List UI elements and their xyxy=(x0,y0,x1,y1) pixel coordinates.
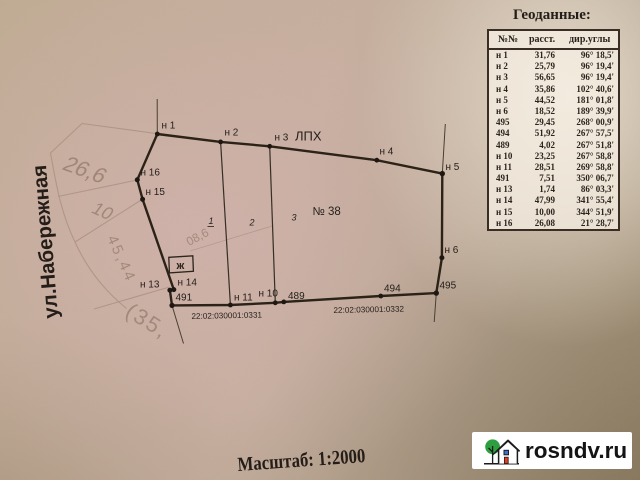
svg-text:н 4: н 4 xyxy=(380,147,394,158)
svg-text:н 5: н 5 xyxy=(446,162,460,173)
svg-text:26,6: 26,6 xyxy=(58,152,112,188)
svg-text:10: 10 xyxy=(88,199,118,223)
svg-text:н 2: н 2 xyxy=(225,128,239,139)
svg-text:495: 495 xyxy=(440,281,457,292)
svg-text:№ 38: № 38 xyxy=(313,206,341,218)
svg-text:3: 3 xyxy=(292,213,297,223)
svg-text:491: 491 xyxy=(176,293,193,304)
svg-text:н 11: н 11 xyxy=(234,293,253,304)
svg-text:н 3: н 3 xyxy=(275,133,289,144)
svg-text:45,44: 45,44 xyxy=(103,233,139,286)
svg-text:494: 494 xyxy=(384,284,401,295)
svg-text:н 16: н 16 xyxy=(141,168,161,179)
svg-text:н 15: н 15 xyxy=(146,187,166,198)
svg-text:н 10: н 10 xyxy=(259,289,279,300)
svg-text:ж: ж xyxy=(176,260,185,272)
svg-text:489: 489 xyxy=(288,291,305,302)
svg-text:н 6: н 6 xyxy=(445,245,459,256)
svg-text:н 1: н 1 xyxy=(162,121,176,132)
svg-text:н 13: н 13 xyxy=(140,280,160,291)
svg-text:ул.Набережная: ул.Набережная xyxy=(28,164,63,319)
svg-text:(35,: (35, xyxy=(121,298,173,344)
svg-text:2: 2 xyxy=(249,218,255,228)
svg-text:1: 1 xyxy=(209,216,214,226)
svg-text:н 14: н 14 xyxy=(178,278,198,289)
svg-text:22:02:030001:0331: 22:02:030001:0331 xyxy=(191,311,262,321)
svg-text:Масштаб: 1:2000: Масштаб: 1:2000 xyxy=(237,445,366,476)
svg-text:ЛПХ: ЛПХ xyxy=(295,129,322,144)
svg-text:08,6: 08,6 xyxy=(184,225,211,248)
svg-text:22:02:030001:0332: 22:02:030001:0332 xyxy=(333,305,404,315)
